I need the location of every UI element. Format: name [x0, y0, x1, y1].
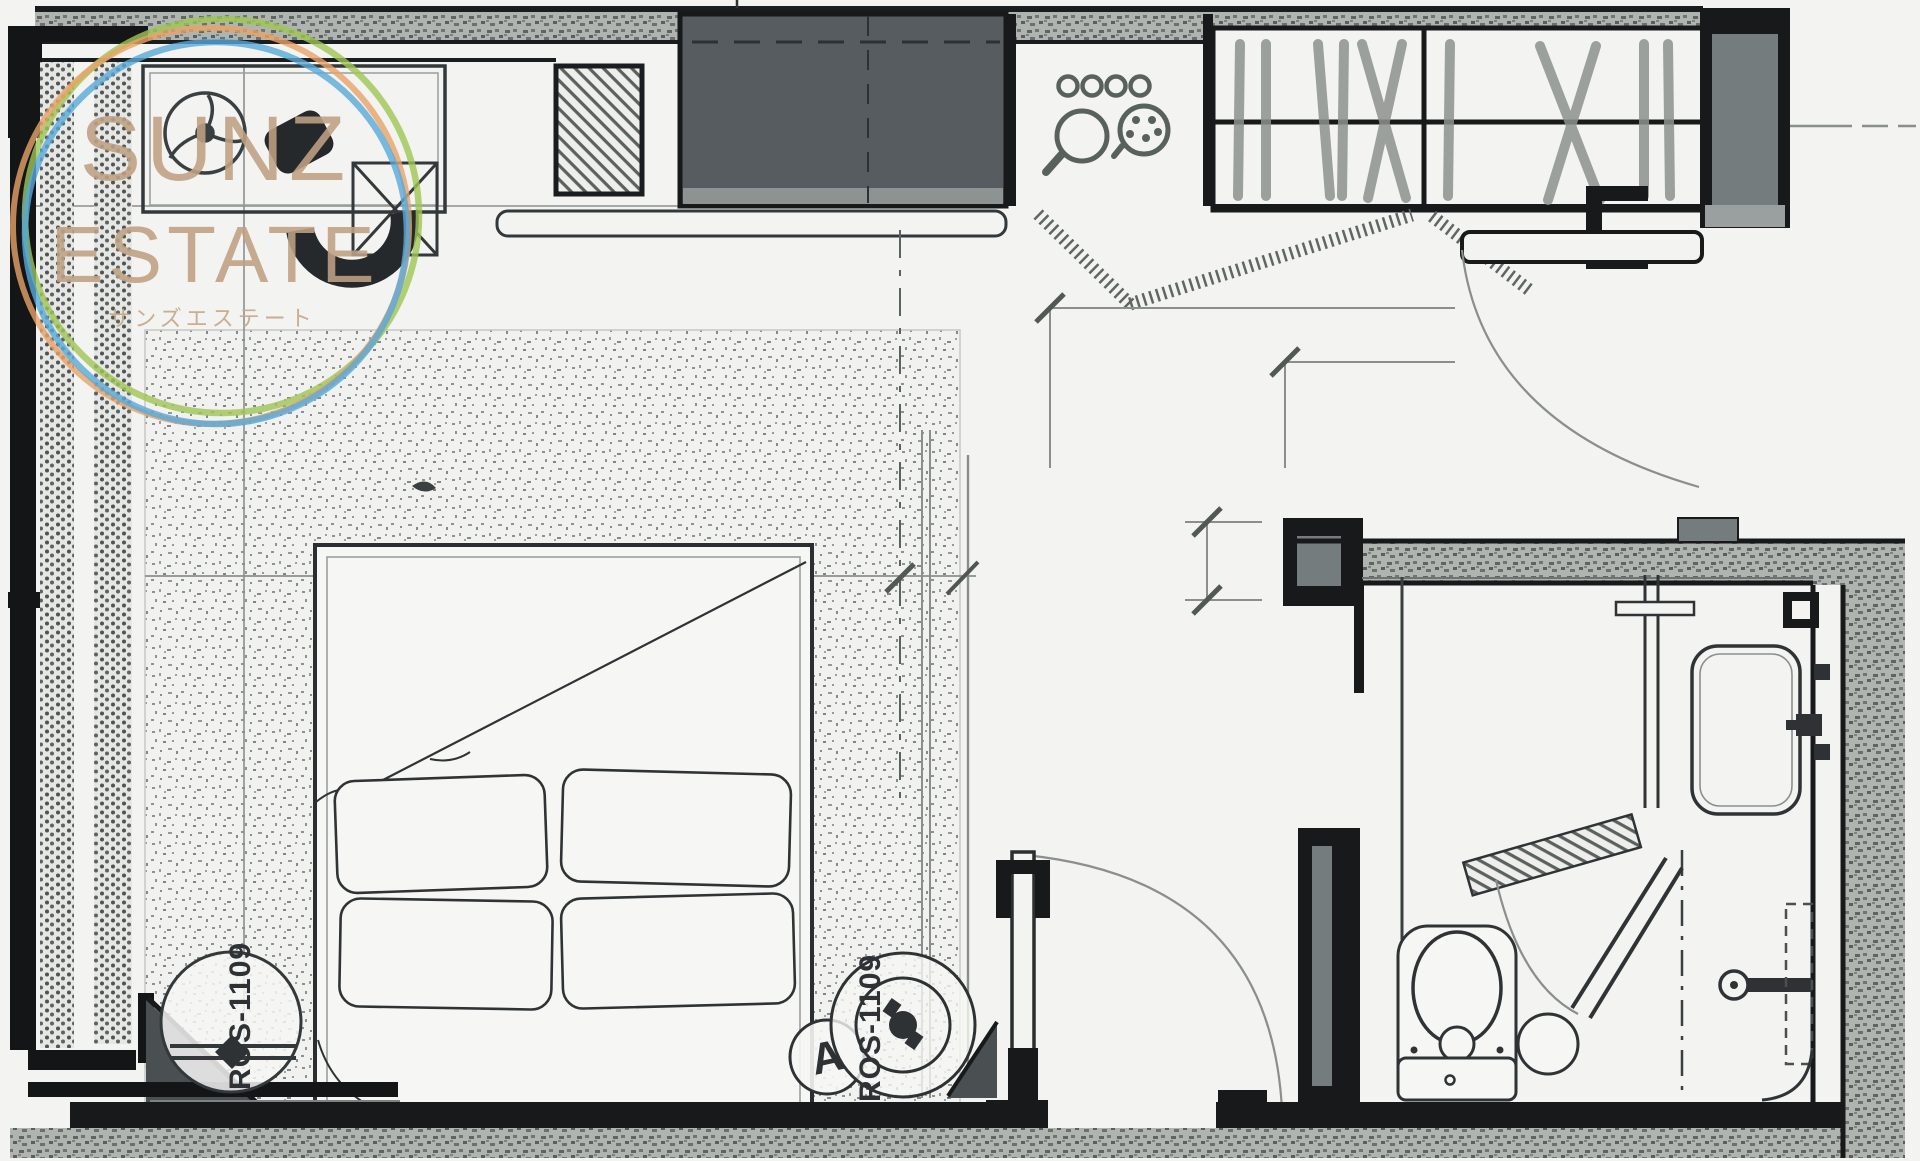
bed: [315, 481, 812, 1108]
wall-switch-box: [1783, 592, 1819, 628]
sprinkler-label-right: ROS-1109: [854, 954, 887, 1102]
entry-door-leaf: [1462, 232, 1702, 262]
floor-plan-page: ROS-1109 A ROS-1109: [0, 0, 1920, 1161]
sprinkler-label-left: ROS-1109: [224, 942, 257, 1090]
watermark-subtitle: サンズエステート: [108, 306, 316, 331]
watermark-line2: ESTATE: [50, 210, 379, 299]
kitchen-counter: [497, 211, 1006, 236]
pillow: [334, 774, 548, 893]
entry-wall-column: [1700, 8, 1790, 228]
floor-drain: [1518, 1014, 1578, 1074]
floor-plan-drawing: ROS-1109 A ROS-1109: [0, 0, 1920, 1161]
pillow: [561, 769, 792, 887]
duct-shaft-hatch: [556, 66, 642, 194]
watermark-line1: SUNZ: [80, 98, 350, 200]
toilet: [1398, 926, 1516, 1100]
pillow: [561, 893, 796, 1009]
faucet-icon: [1796, 714, 1822, 736]
pillow: [339, 898, 553, 1010]
